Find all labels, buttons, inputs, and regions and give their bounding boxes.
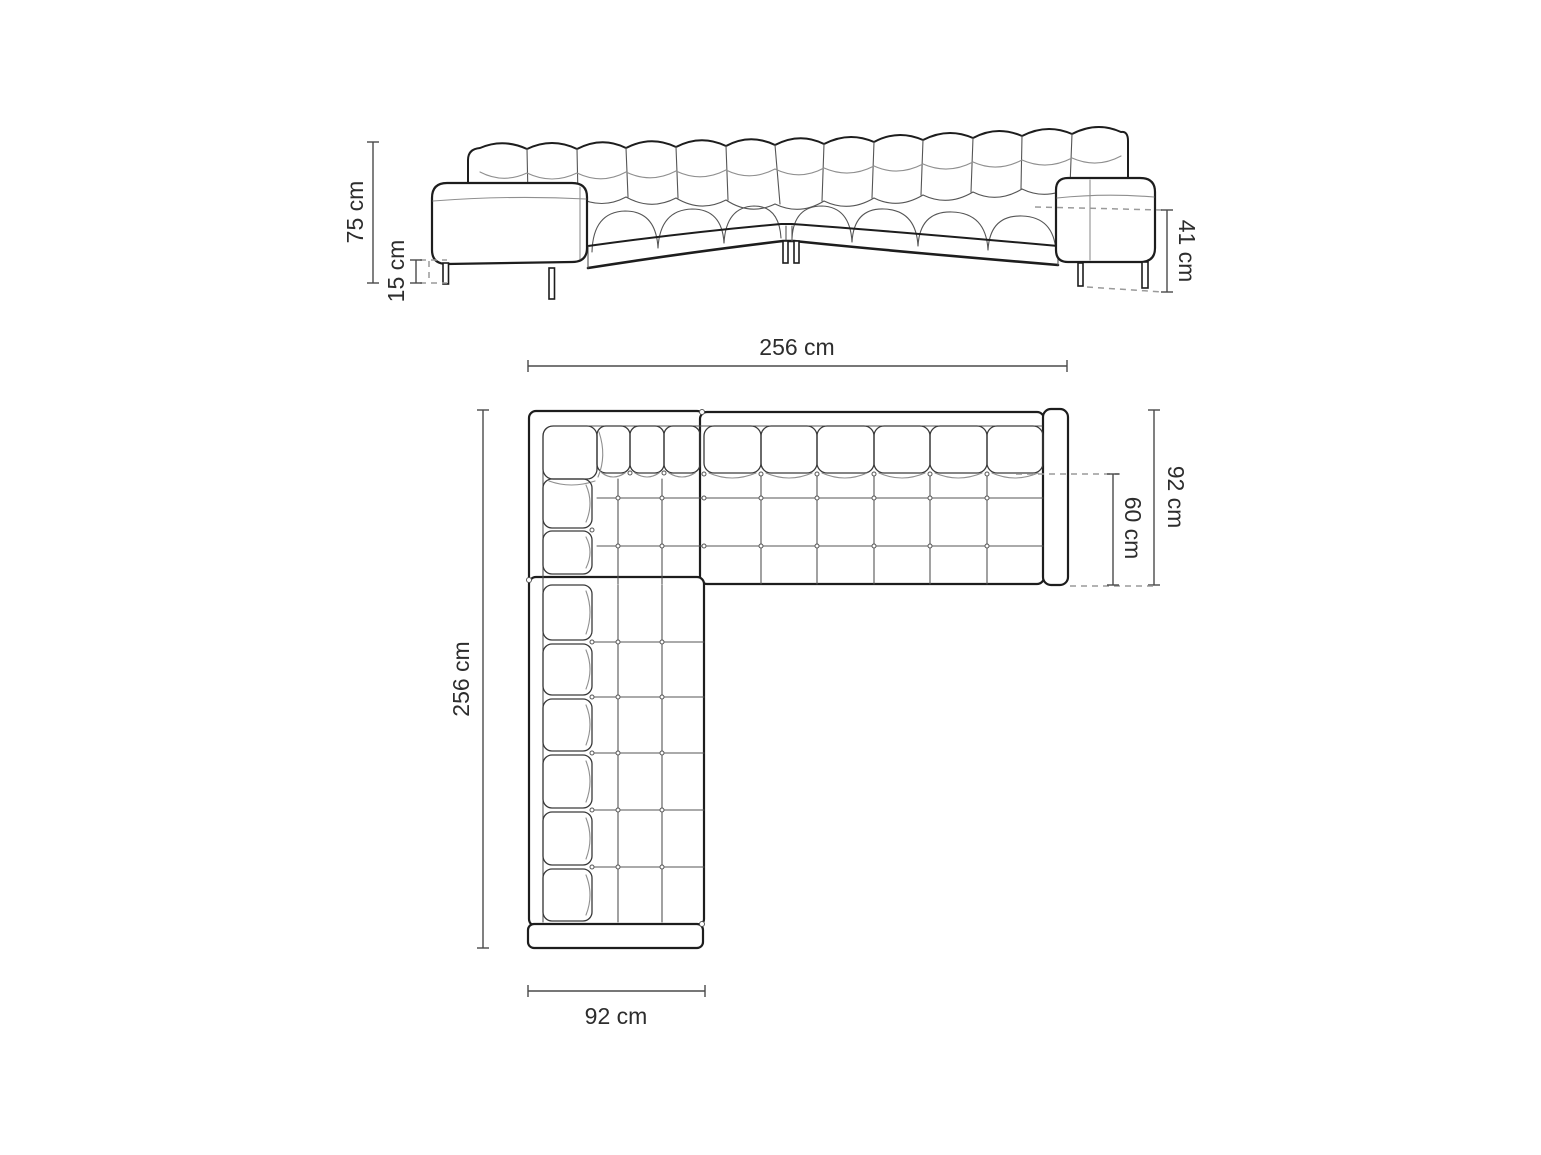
leg [443,263,449,284]
total-depth-label: 256 cm [448,641,474,716]
backrest-top-edge [468,127,1128,188]
seat-height-label: 41 cm [1174,220,1200,283]
end-cap [528,924,703,948]
seat-depth-label: 60 cm [1120,497,1146,560]
sofa-dimension-diagram: 75 cm 15 cm 41 cm [0,0,1541,1155]
total-width-label: 256 cm [759,334,834,360]
chaise-width-dimension: 92 cm [528,985,705,1029]
leg [549,268,555,299]
left-armrest [432,183,587,264]
side-depth-dimension: 92 cm [1148,410,1189,585]
leg-height-label: 15 cm [383,240,409,303]
leg [1078,263,1083,286]
right-armrest [1056,178,1155,262]
leg [783,241,788,263]
top-plan-view: 256 cm 256 cm 92 cm 60 cm [448,334,1189,1029]
chaise-width-label: 92 cm [585,1003,648,1029]
overall-height-label: 75 cm [342,181,368,244]
back-mid-crease [480,156,1121,179]
overall-height-dimension: 75 cm [342,142,379,283]
side-depth-label: 92 cm [1163,466,1189,529]
leg [794,241,799,263]
total-width-dimension: 256 cm [528,334,1067,372]
right-armrest-plan [1043,409,1068,585]
leg [1142,262,1148,288]
total-depth-dimension: 256 cm [448,410,489,948]
front-elevation-view: 75 cm 15 cm 41 cm [342,127,1200,302]
